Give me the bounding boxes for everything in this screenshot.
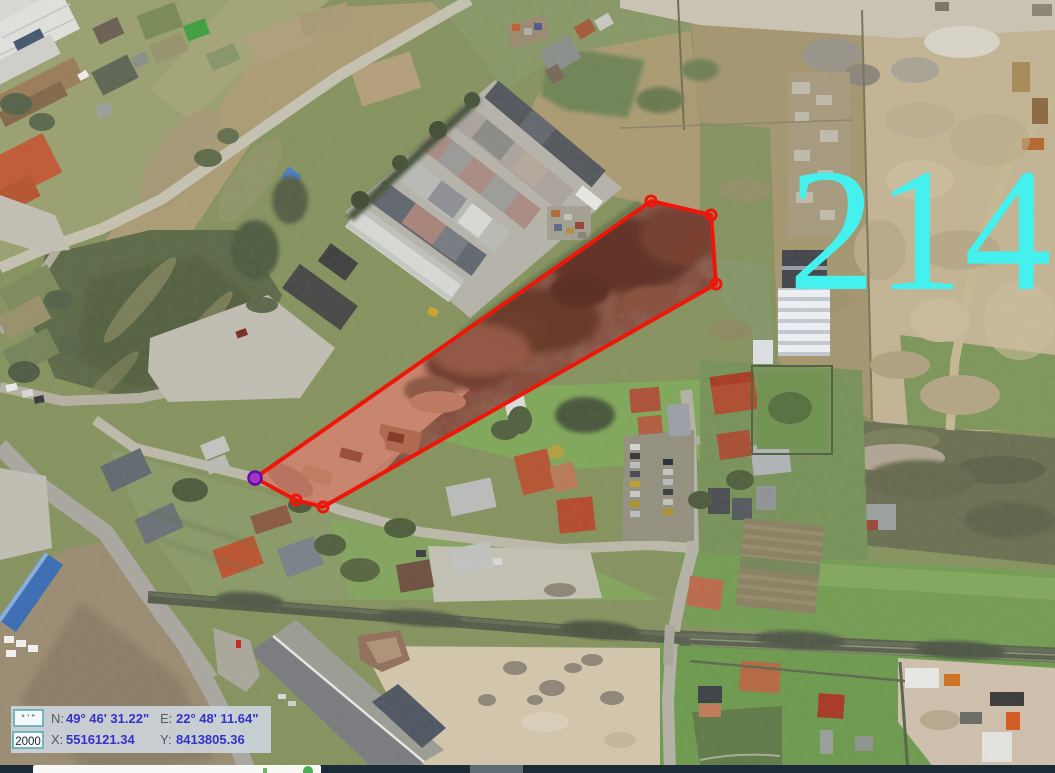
svg-text:8413805.36: 8413805.36: [176, 732, 245, 747]
svg-text:49° 46' 31.22": 49° 46' 31.22": [66, 711, 149, 726]
svg-text:N:: N:: [51, 711, 64, 726]
svg-text:214: 214: [788, 133, 1052, 328]
svg-text:° ' ": ° ' ": [21, 713, 35, 723]
svg-text:X:: X:: [51, 732, 63, 747]
svg-text:2000: 2000: [15, 736, 41, 748]
svg-text:22° 48' 11.64": 22° 48' 11.64": [176, 711, 258, 726]
svg-text:Y:: Y:: [160, 732, 172, 747]
svg-text:E:: E:: [160, 711, 172, 726]
svg-text:5516121.34: 5516121.34: [66, 732, 135, 747]
